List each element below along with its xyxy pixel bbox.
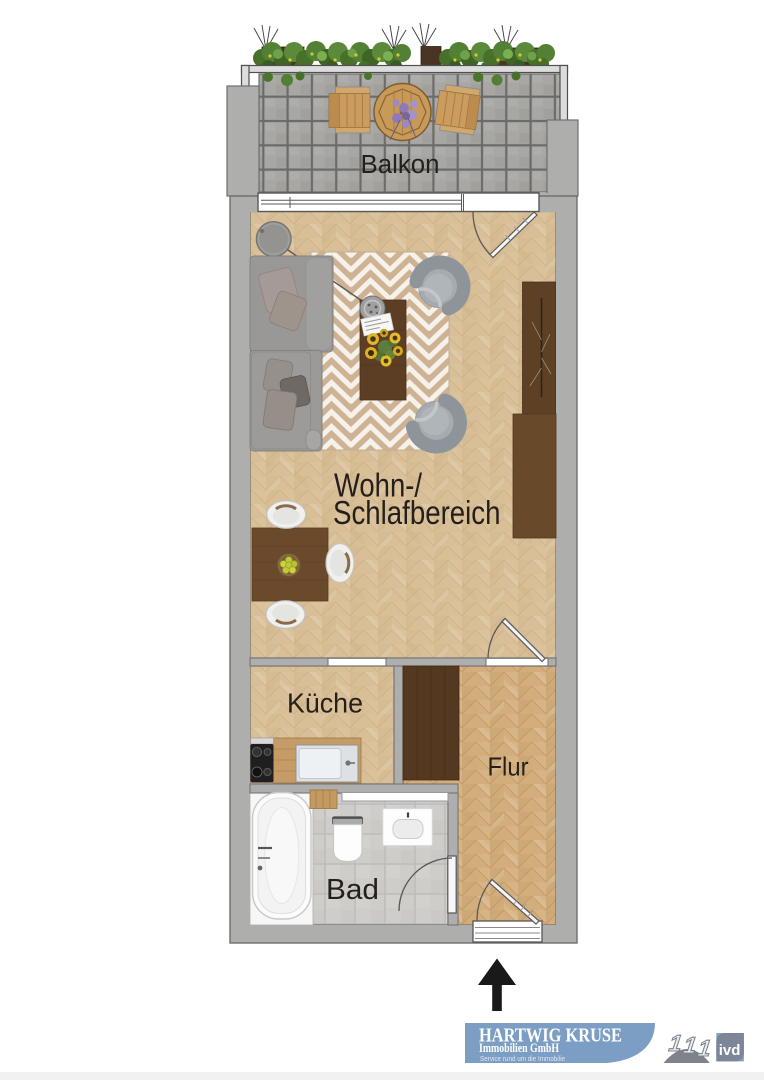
- svg-text:Bad: Bad: [326, 874, 379, 906]
- svg-text:Flur: Flur: [488, 752, 529, 782]
- svg-text:Balkon: Balkon: [361, 151, 440, 179]
- svg-text:ivd: ivd: [719, 1042, 741, 1059]
- svg-text:Service rund um die Immobilie: Service rund um die Immobilie: [480, 1054, 565, 1063]
- svg-text:Schlafbereich: Schlafbereich: [333, 494, 501, 531]
- svg-text:Immobilien GmbH: Immobilien GmbH: [479, 1041, 559, 1055]
- svg-text:Küche: Küche: [287, 688, 363, 719]
